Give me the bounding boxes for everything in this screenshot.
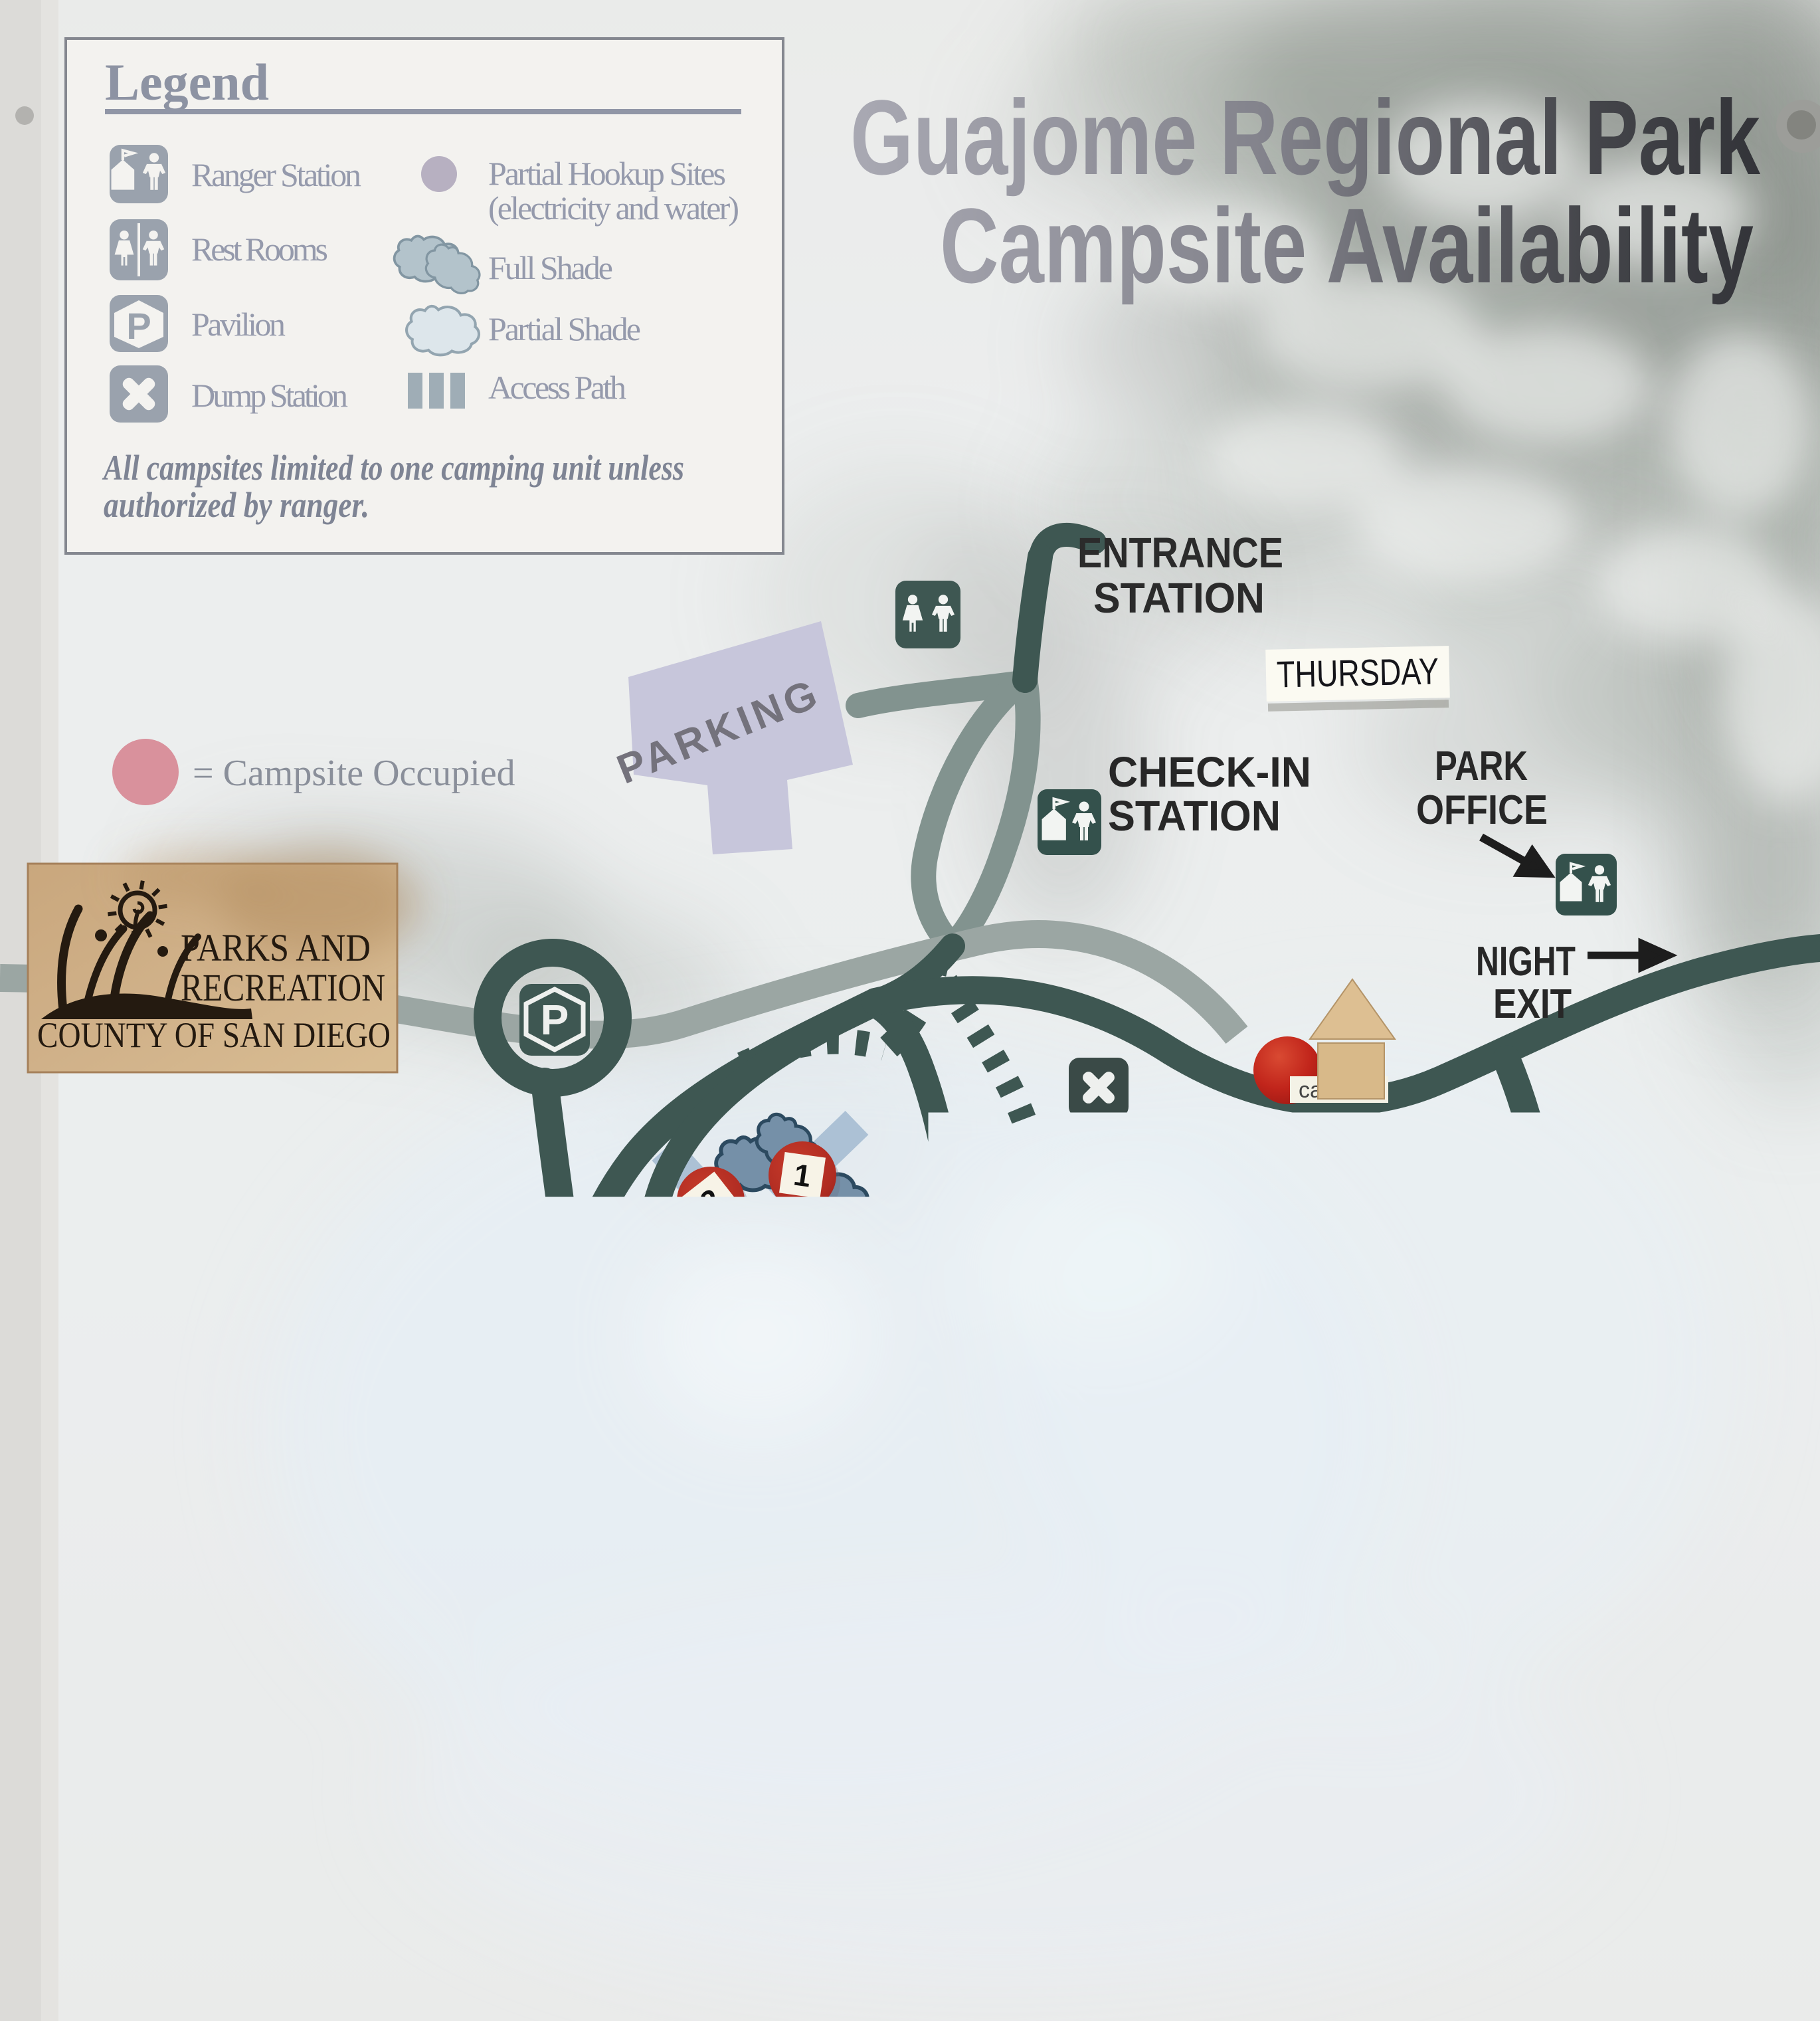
svg-text:16: 16 — [1203, 1284, 1239, 1321]
svg-text:RECREATION: RECREATION — [181, 966, 385, 1009]
svg-text:Pavilion: Pavilion — [191, 306, 286, 343]
svg-text:STATION: STATION — [1093, 574, 1265, 622]
svg-text:ENTRANCE: ENTRANCE — [1077, 529, 1283, 577]
svg-text:23: 23 — [739, 1890, 773, 1925]
svg-text:28: 28 — [1047, 1640, 1081, 1675]
svg-text:24: 24 — [729, 1710, 763, 1745]
svg-text:30: 30 — [1212, 1617, 1245, 1652]
svg-text:Campsite Availability: Campsite Availability — [940, 186, 1754, 305]
svg-text:EXIT: EXIT — [1493, 981, 1572, 1027]
svg-text:15: 15 — [1068, 1354, 1107, 1394]
svg-text:CHECK-IN: CHECK-IN — [1108, 748, 1311, 796]
svg-text:Dump Station: Dump Station — [191, 377, 348, 414]
svg-text:Partial Hookup Sites: Partial Hookup Sites — [488, 155, 726, 192]
svg-text:Ranger Station: Ranger Station — [191, 156, 361, 193]
svg-text:Guajome Regional Park: Guajome Regional Park — [850, 78, 1761, 197]
svg-text:authorized by ranger.: authorized by ranger. — [104, 485, 369, 525]
svg-text:STATION: STATION — [1108, 792, 1281, 840]
svg-text:31: 31 — [1348, 1778, 1387, 1817]
svg-text:= Campsite Occupied: = Campsite Occupied — [193, 753, 515, 794]
svg-text:Where having fun is natural.: Where having fun is natural. — [1519, 1947, 1756, 1972]
svg-text:COUNTY OF SAN DIEGO: COUNTY OF SAN DIEGO — [37, 1015, 391, 1055]
svg-text:All campsites limited to one c: All campsites limited to one camping uni… — [102, 448, 684, 488]
svg-text:12: 12 — [851, 1260, 885, 1295]
svg-text:P: P — [126, 305, 151, 347]
svg-text:Rest Rooms: Rest Rooms — [191, 231, 328, 268]
svg-text:33: 33 — [1479, 1489, 1519, 1530]
svg-text:21: 21 — [416, 1778, 454, 1815]
svg-text:18: 18 — [216, 1600, 253, 1637]
svg-text:Partial Shade: Partial Shade — [488, 310, 641, 347]
svg-text:27: 27 — [1063, 1818, 1099, 1855]
svg-text:THURSDAY: THURSDAY — [1276, 650, 1439, 695]
svg-text:10: 10 — [760, 1413, 800, 1452]
svg-text:RECREATION: RECREATION — [1607, 1887, 1762, 1917]
svg-text:NIGHT: NIGHT — [1476, 939, 1576, 985]
svg-text:(electricity and water): (electricity and water) — [488, 189, 739, 227]
svg-text:PARKS AND: PARKS AND — [1607, 1856, 1748, 1887]
svg-text:22: 22 — [545, 1745, 585, 1786]
svg-text:19: 19 — [193, 1730, 230, 1767]
svg-text:COUNTY OF SAN DIEGO: COUNTY OF SAN DIEGO — [1519, 1915, 1758, 1943]
svg-text:20: 20 — [245, 1830, 281, 1867]
svg-text:Full Shade: Full Shade — [488, 249, 613, 286]
svg-text:Access Path: Access Path — [488, 369, 626, 406]
svg-text:OFFICE: OFFICE — [1416, 787, 1548, 833]
svg-text:17: 17 — [1383, 1367, 1417, 1401]
svg-text:P: P — [541, 996, 569, 1044]
svg-text:Legend: Legend — [105, 53, 269, 111]
svg-text:PARK: PARK — [1435, 743, 1528, 789]
svg-text:PARKS AND: PARKS AND — [181, 926, 371, 969]
